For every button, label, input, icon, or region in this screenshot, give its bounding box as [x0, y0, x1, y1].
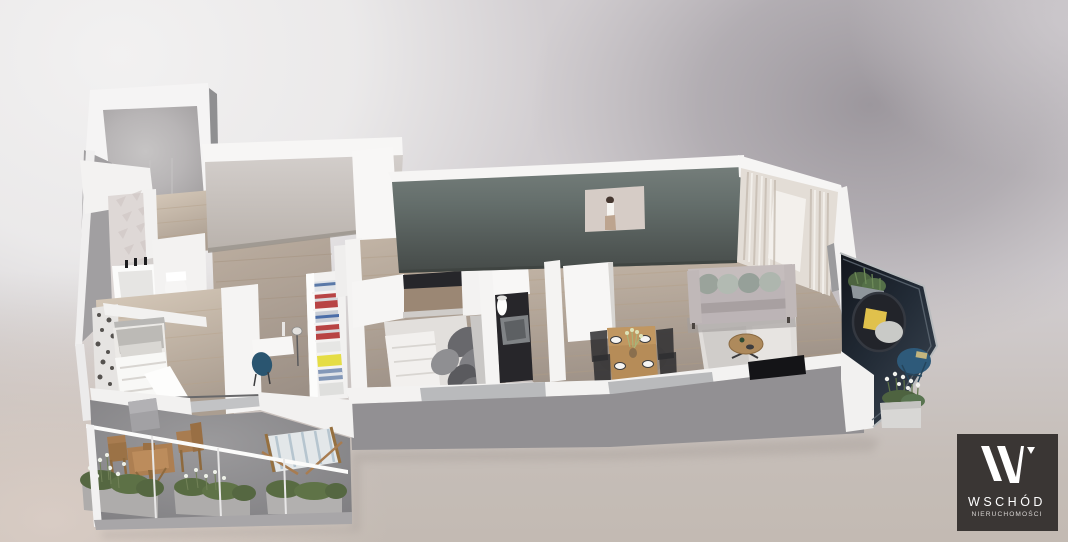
svg-text:NIERUCHOMOŚCI: NIERUCHOMOŚCI	[971, 509, 1042, 518]
svg-text:WSCHÓD: WSCHÓD	[968, 494, 1046, 509]
